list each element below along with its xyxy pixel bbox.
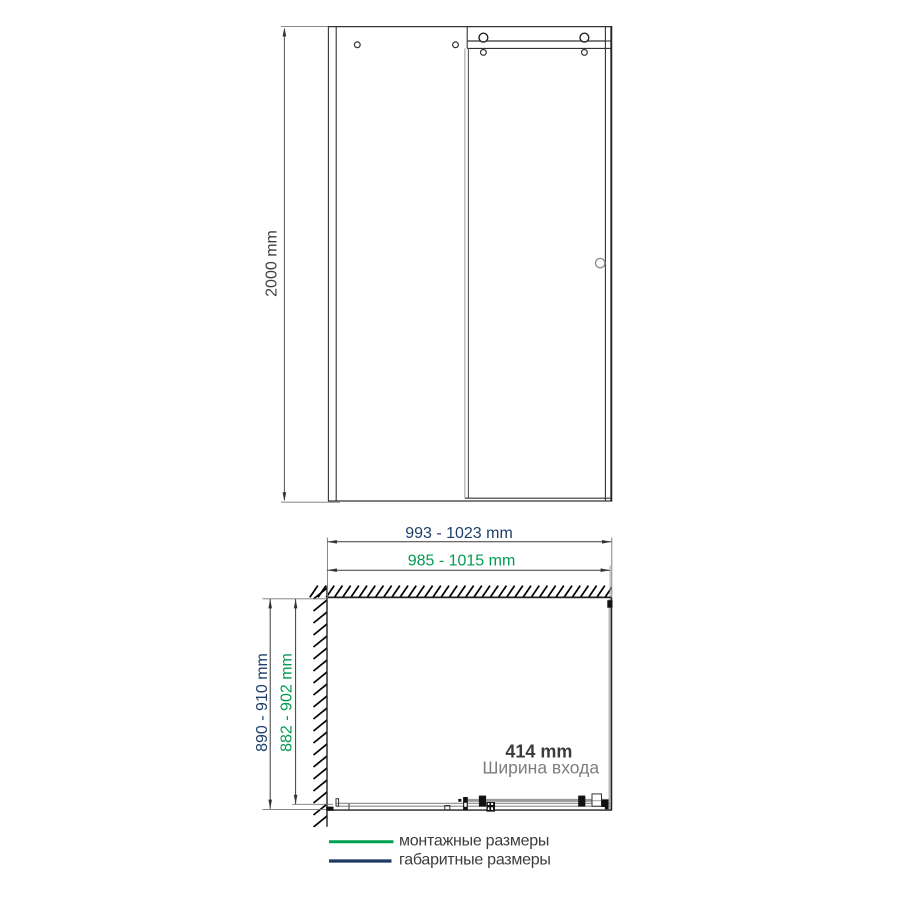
svg-text:габаритные размеры: габаритные размеры <box>399 852 551 869</box>
svg-text:985 - 1015 mm: 985 - 1015 mm <box>408 553 516 570</box>
svg-text:Ширина входа: Ширина входа <box>482 758 599 778</box>
svg-text:993 - 1023 mm: 993 - 1023 mm <box>405 525 513 542</box>
svg-text:монтажные размеры: монтажные размеры <box>399 832 549 849</box>
svg-text:890 - 910 mm: 890 - 910 mm <box>254 653 271 752</box>
svg-text:882 - 902 mm: 882 - 902 mm <box>279 653 296 752</box>
svg-text:2000 mm: 2000 mm <box>264 230 281 297</box>
